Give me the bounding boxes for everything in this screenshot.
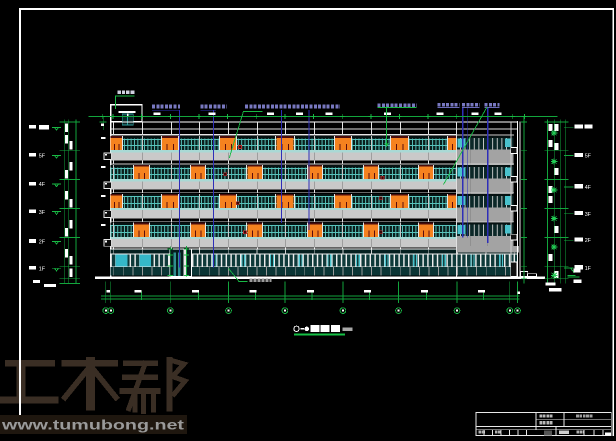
svg-text:www.tumubong.net: www.tumubong.net <box>1 418 185 433</box>
svg-text:5F: 5F <box>585 154 592 160</box>
svg-text:4F: 4F <box>39 182 46 188</box>
svg-text:1F: 1F <box>585 266 592 272</box>
svg-text:3F: 3F <box>585 212 592 218</box>
svg-text:5F: 5F <box>39 154 46 160</box>
svg-text:4F: 4F <box>585 185 592 191</box>
svg-text:3F: 3F <box>39 210 46 216</box>
svg-text:2F: 2F <box>585 238 592 244</box>
svg-text:1F: 1F <box>39 266 46 272</box>
svg-text:2F: 2F <box>39 240 46 246</box>
